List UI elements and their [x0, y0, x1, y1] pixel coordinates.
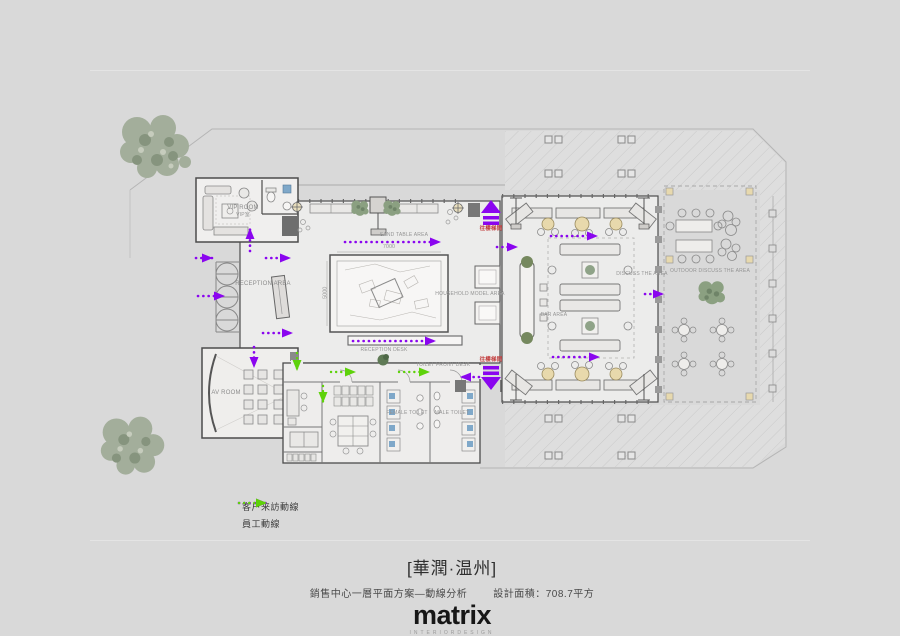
title-block: [華潤·温州] 銷售中心一層平面方案—動線分析設計面積：708.7平方 matr…	[242, 554, 662, 636]
note-to-stair-up: 往樓梯間	[480, 227, 503, 233]
project-title: [華潤·温州]	[242, 554, 662, 579]
label-vip-room: VIP ROOM	[227, 205, 259, 211]
label-toilet-front-desk: TOILET FRONT DESK	[416, 363, 470, 368]
dimension-sand-table-width: 7000	[383, 245, 395, 251]
drawing-subtitle: 銷售中心一層平面方案—動線分析設計面積：708.7平方	[242, 585, 662, 600]
outdoor-round-tables	[672, 318, 734, 376]
tree-top-left	[120, 115, 191, 178]
dimension-sand-table-depth: 5000	[323, 287, 329, 299]
floorplan-drawing	[0, 0, 900, 634]
tree-facade-left	[351, 200, 368, 215]
label-male-toilet: MALE TOILET	[435, 411, 470, 416]
sand-table-model	[327, 252, 448, 332]
tree-outdoor	[699, 281, 726, 304]
staff-route-arrow-icon	[236, 498, 270, 508]
legend: 客户来訪動線 員工動線	[236, 498, 299, 532]
matrix-logo: matrix	[242, 602, 662, 629]
label-sand-table-area: SAND TABLE AREA	[380, 233, 428, 238]
legend-label-staff-route: 員工動線	[242, 517, 280, 530]
note-to-stair-down: 往樓梯間	[480, 358, 503, 364]
label-vip-room-zh: VIP室	[236, 213, 250, 218]
escalator-down-icon	[481, 366, 501, 390]
tree-bottom-left	[101, 417, 164, 475]
design-area: 設計面積：708.7平方	[493, 589, 594, 600]
label-outdoor-discuss-area: OUTDOOR DISCUSS THE AREA	[670, 269, 750, 274]
legend-item-staff-route: 員工動線	[236, 515, 299, 532]
label-female-toilet: FEMALE TOILET	[386, 411, 427, 416]
drawing-name: 銷售中心一層平面方案—動線分析	[310, 589, 468, 600]
label-household-model-area: HOUSEHOLD MODEL AREA	[435, 292, 504, 297]
label-reception-area: RECEPTION AREA	[235, 281, 290, 287]
tree-facade-right	[383, 200, 400, 215]
matrix-logo-subtitle: INTERIORDESIGN	[242, 630, 662, 636]
drawing-canvas: VIP ROOM VIP室 RECEPTION AREA AV ROOM REC…	[0, 0, 900, 634]
label-discuss-area: DISCUSS THE AREA	[616, 272, 667, 277]
label-bar-area: BAR AREA	[541, 313, 568, 318]
label-reception-desk: RECEPTION DESK	[361, 348, 408, 353]
label-av-room: AV ROOM	[211, 390, 240, 396]
